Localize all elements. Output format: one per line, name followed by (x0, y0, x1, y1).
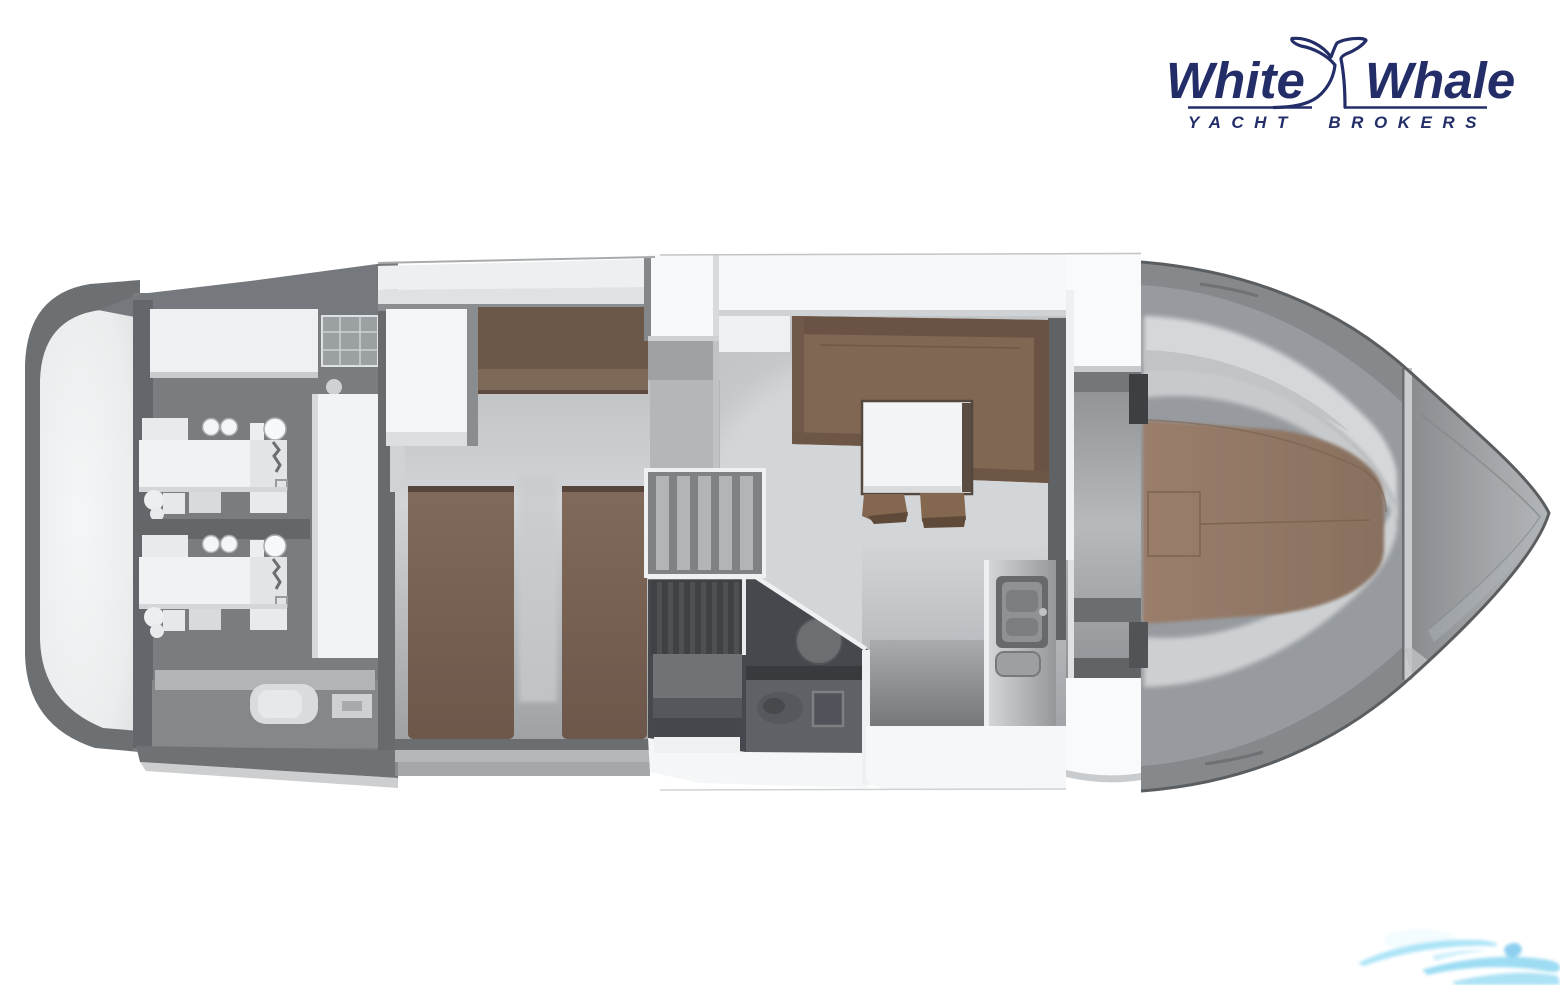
svg-text:White: White (1166, 52, 1305, 109)
svg-text:Whale: Whale (1365, 52, 1515, 109)
